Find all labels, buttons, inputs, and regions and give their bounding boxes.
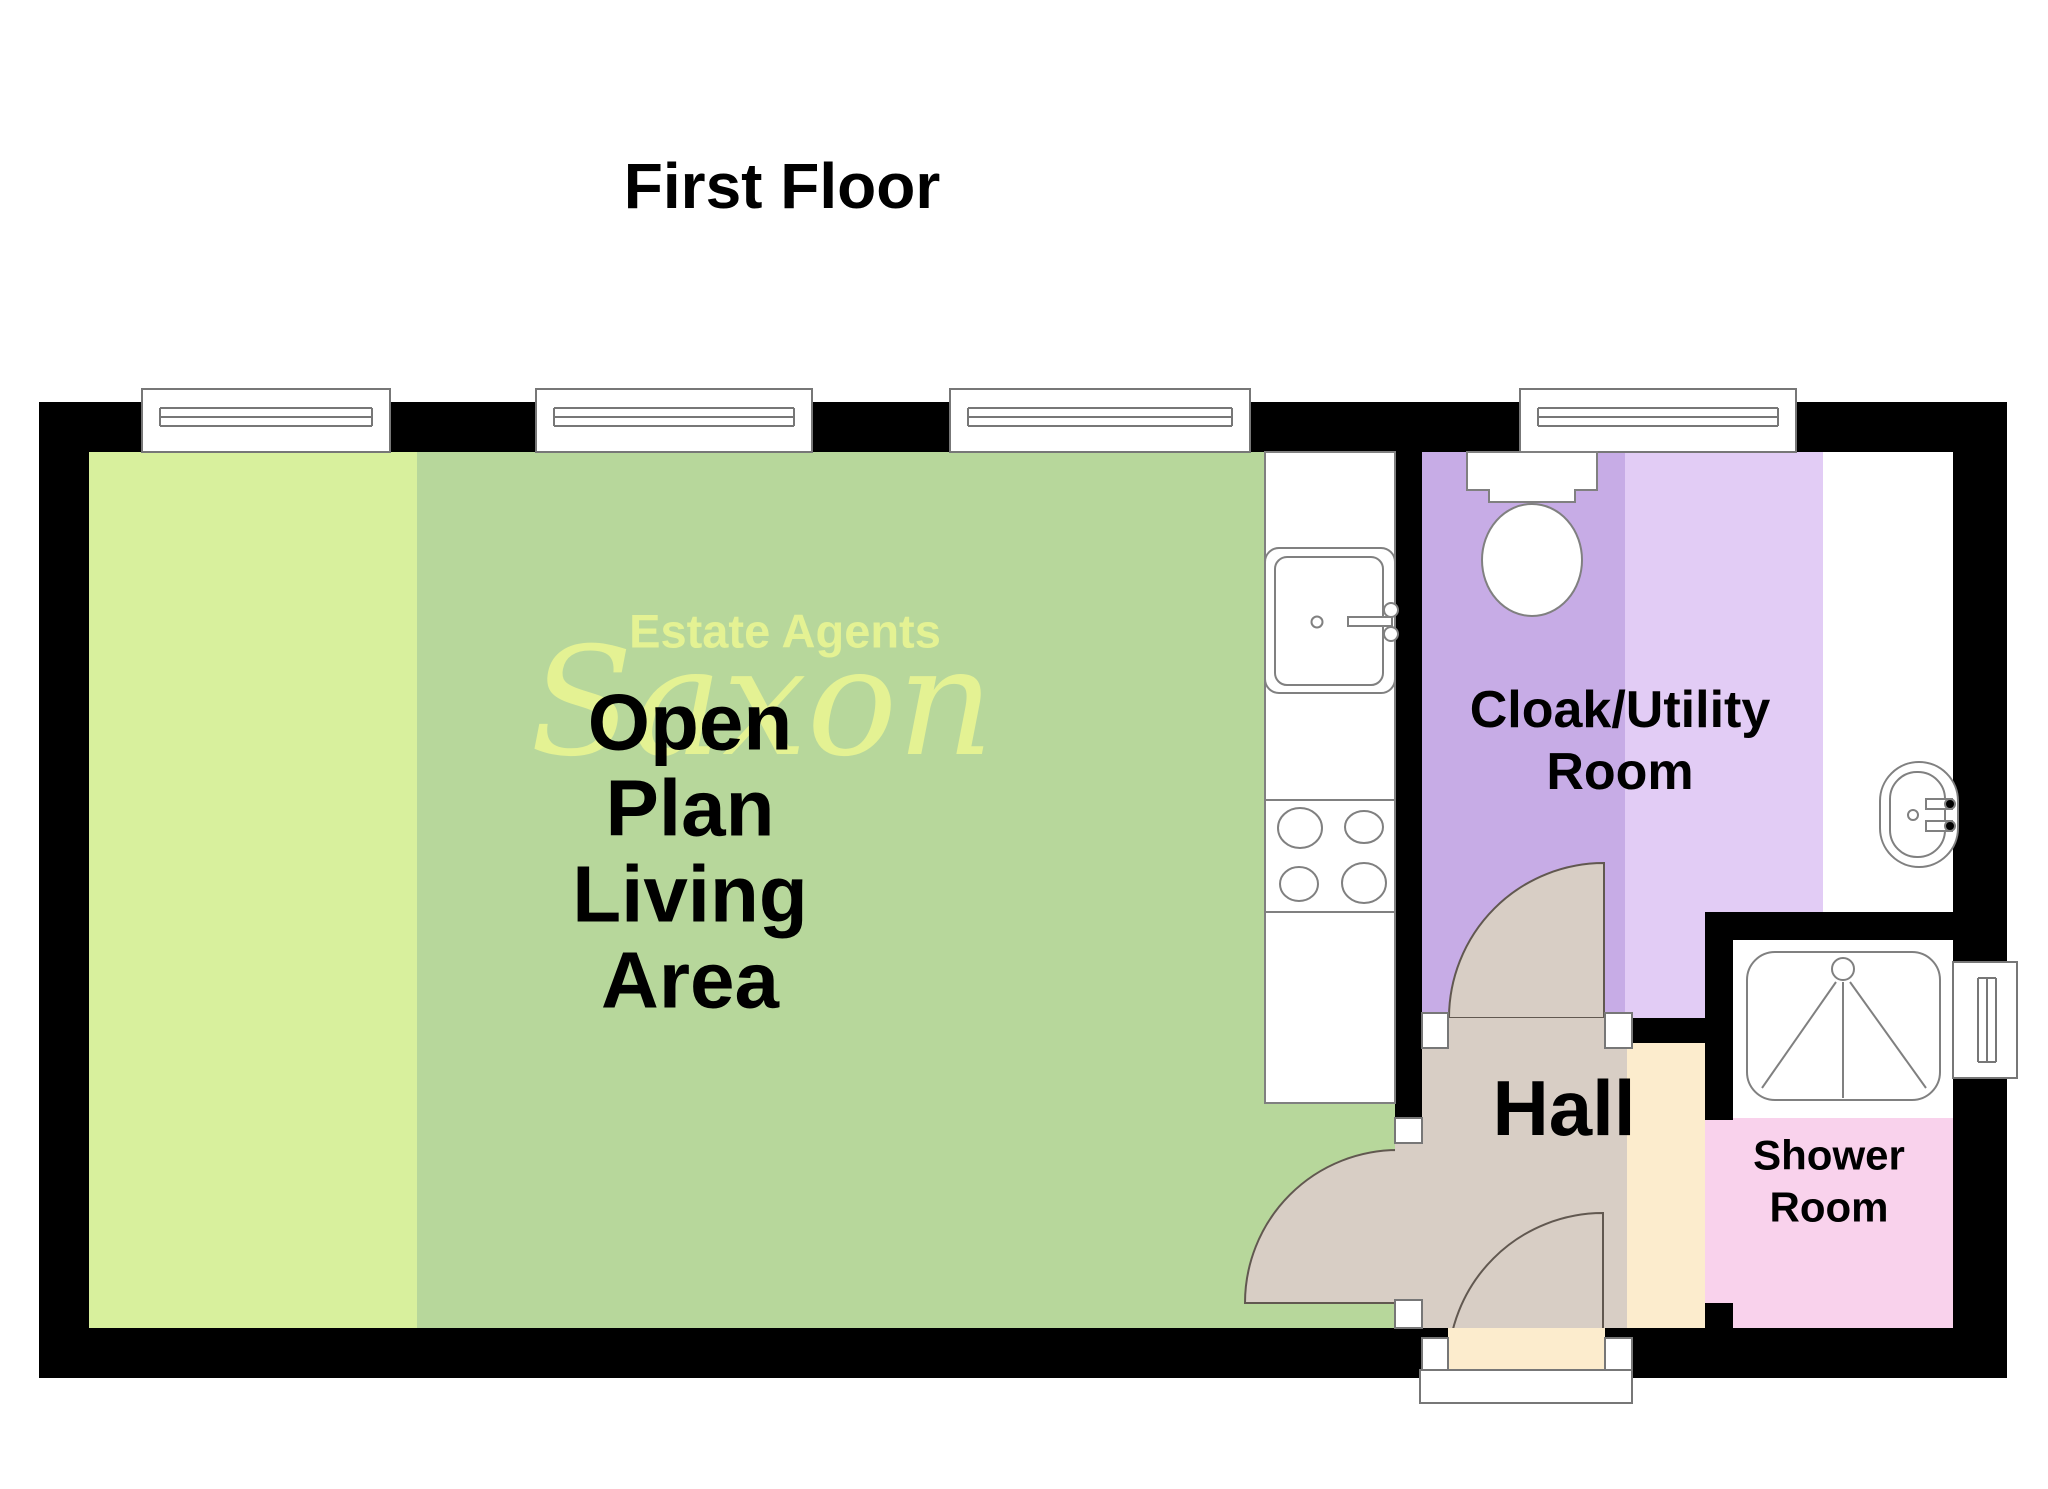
- living-door-opening: [1395, 1143, 1422, 1300]
- basin-icon: [1880, 762, 1958, 867]
- window-cloak: [1520, 389, 1796, 452]
- wall-living-hall-divider: [1395, 452, 1422, 1118]
- shower-room-label-line2: Room: [1770, 1184, 1889, 1231]
- door-jamb: [1422, 1338, 1448, 1370]
- living-area-label-line3: Living: [572, 850, 808, 939]
- stove-hob-icon: [1265, 800, 1395, 912]
- room-floors: [89, 452, 1953, 1328]
- hall-label: Hall: [1492, 1064, 1635, 1152]
- wall-right: [1953, 402, 2007, 1378]
- wall-shower-left: [1705, 912, 1733, 1120]
- entrance-door-opening: [1448, 1328, 1605, 1370]
- page-title: First Floor: [624, 150, 940, 222]
- wall-left: [39, 402, 89, 1378]
- kitchen-sink-icon: [1265, 548, 1398, 693]
- window-shower: [1953, 962, 2017, 1078]
- window-living-2: [536, 389, 812, 452]
- door-jamb: [1395, 1300, 1422, 1328]
- cloak-room-label-line2: Room: [1546, 743, 1693, 801]
- window-living-3: [950, 389, 1250, 452]
- cloak-room-floor-light-notch: [1625, 912, 1705, 1018]
- door-jamb: [1422, 1013, 1448, 1048]
- wall-shower-top: [1705, 912, 1953, 940]
- door-jamb: [1395, 1118, 1422, 1143]
- living-area-label-line2: Plan: [606, 764, 775, 853]
- wall-bottom: [39, 1328, 2007, 1378]
- wall-shower-left-jog: [1705, 1303, 1733, 1330]
- door-jamb: [1605, 1013, 1632, 1048]
- cloak-room-label-line1: Cloak/Utility: [1470, 681, 1771, 739]
- floorplan-page: Estate Agents Saxon: [0, 0, 2048, 1489]
- living-area-label-line4: Area: [601, 936, 779, 1025]
- living-area-label-line1: Open: [588, 678, 792, 767]
- entrance-step: [1420, 1370, 1632, 1403]
- door-jamb: [1605, 1338, 1632, 1370]
- window-living-1: [142, 389, 390, 452]
- hall-floor: [1627, 1043, 1705, 1328]
- shower-room-label-line1: Shower: [1753, 1132, 1905, 1179]
- floor-plan: Estate Agents Saxon: [0, 0, 2048, 1489]
- living-area-floor-light: [89, 452, 417, 1328]
- cloak-door-opening: [1448, 1018, 1605, 1043]
- shower-tray-icon: [1747, 952, 1940, 1100]
- living-area-floor-sage: [417, 452, 1395, 1328]
